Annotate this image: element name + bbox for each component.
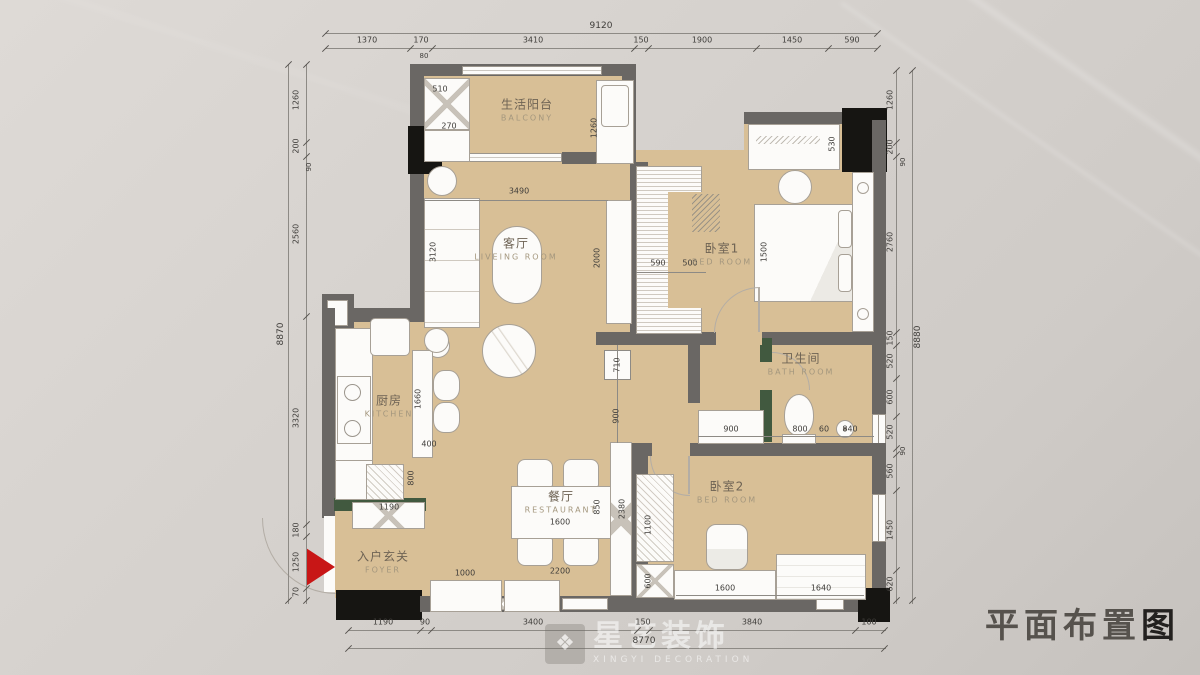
stove-burner — [344, 420, 361, 437]
dim-label-interior: 1190 — [379, 503, 399, 512]
room-label-en-bedroom1: BED ROOM — [692, 258, 752, 267]
wall-mid-b — [762, 332, 886, 345]
dim-label-interior: 840 — [842, 425, 857, 434]
dim-label-right: 150 — [886, 330, 895, 345]
room-label-bedroom1: 卧室1 — [705, 240, 740, 257]
dim-sub-top: 80 — [420, 52, 429, 60]
dim-label-left: 1260 — [292, 90, 301, 110]
bedroom1-door-leaf — [758, 288, 760, 332]
dim-overall-left: 8870 — [276, 323, 286, 346]
bar-stool — [433, 370, 460, 401]
dim-overall-right: 8880 — [913, 326, 923, 349]
dim-label-interior: 2200 — [550, 567, 570, 576]
dim-label-interior: 710 — [613, 357, 622, 372]
dim-label-top: 150 — [633, 36, 648, 45]
dim-label-interior: 800 — [407, 470, 416, 485]
dim-label-bottom: 150 — [635, 618, 650, 627]
dim-label-interior: 60 — [819, 425, 829, 434]
window-bedroom2 — [872, 494, 886, 542]
fridge — [366, 464, 404, 500]
dim-label-right: 200 — [886, 139, 895, 154]
dining-chair — [517, 459, 553, 487]
dim-label-interior: 800 — [792, 425, 807, 434]
dim-line — [896, 70, 897, 604]
dim-label-interior: 1000 — [455, 569, 475, 578]
dim-label-top: 1450 — [782, 36, 802, 45]
room-label-bedroom2: 卧室2 — [710, 478, 745, 495]
balcony-shelf — [424, 130, 470, 162]
dim-label-interior: 1600 — [550, 518, 570, 527]
dim-label-interior: 1260 — [590, 118, 599, 138]
bedroom1-door-gap — [716, 332, 762, 345]
balcony-sink-basin — [601, 85, 629, 127]
room-label-living: 客厅 — [503, 235, 529, 252]
bar-stool — [433, 402, 460, 433]
closet-top-cabinet — [748, 124, 840, 170]
dim-label-right: 620 — [886, 576, 895, 591]
dim-label-right: 520 — [886, 424, 895, 439]
watermark-name: 星艺装饰 — [593, 622, 753, 652]
entry-arrow — [306, 548, 335, 586]
room-label-en-foyer: FOYER — [365, 566, 401, 575]
shoe-cabinet — [430, 580, 502, 612]
light-streak — [841, 2, 1200, 520]
dim-label-interior: 2380 — [618, 499, 627, 519]
dim-label-right: 520 — [886, 353, 895, 368]
column-bottom-left — [336, 590, 422, 620]
dim-label-interior: 590 — [650, 259, 665, 268]
dim-label-interior: 270 — [441, 122, 456, 131]
dim-label-top: 590 — [844, 36, 859, 45]
dim-line — [424, 200, 608, 201]
dim-label-interior: 530 — [828, 136, 837, 151]
dim-label-bottom: 100 — [861, 618, 876, 627]
window-bottom-small — [562, 598, 608, 610]
floor-plan-canvas: ❖ 星艺装饰 XINGYI DECORATION 平面布置图 137017034… — [0, 0, 1200, 675]
dining-chair — [563, 538, 599, 566]
dim-label-interior: 1100 — [644, 515, 653, 535]
pillow — [838, 210, 852, 248]
round-rug — [482, 324, 536, 378]
room-label-balcony: 生活阳台 — [501, 96, 553, 113]
dim-label-interior: 1600 — [715, 584, 735, 593]
bedroom2-cabinet-tall — [636, 474, 674, 562]
window-balcony — [462, 66, 602, 75]
room-label-kitchen: 厨房 — [376, 392, 402, 409]
dim-label-interior: 2000 — [593, 248, 602, 268]
dim-label-right: 2760 — [886, 232, 895, 252]
wall-left — [322, 308, 335, 518]
dim-tick — [874, 45, 881, 52]
dim-label-bottom: 3400 — [523, 618, 543, 627]
dim-label-left: 180 — [292, 522, 301, 537]
drawing-title: 平面布置图 — [985, 598, 1180, 647]
dim-tick — [881, 627, 888, 634]
dim-label-right: 600 — [886, 389, 895, 404]
wall-living-left — [410, 64, 424, 318]
dim-label-left: 3320 — [292, 408, 301, 428]
room-label-en-bedroom2: BED ROOM — [697, 496, 757, 505]
sofa — [424, 198, 480, 328]
dim-label-left: 2560 — [292, 224, 301, 244]
drawing-title-main: 平面布置 — [985, 606, 1141, 646]
dim-label-interior: 900 — [612, 408, 621, 423]
dim-tick — [874, 30, 881, 37]
dim-label-interior: 510 — [432, 85, 447, 94]
dining-chair — [517, 538, 553, 566]
pillow — [838, 254, 852, 292]
dim-label-left: 1250 — [292, 552, 301, 572]
dining-chair — [563, 459, 599, 487]
watermark-subtitle: XINGYI DECORATION — [593, 655, 753, 665]
dim-label-top: 3410 — [523, 36, 543, 45]
foyer-cabinet — [504, 580, 560, 612]
bedroom2-cabinet-low — [636, 564, 674, 598]
dim-line — [325, 33, 877, 34]
dim-label-interior: 1640 — [811, 584, 831, 593]
kitchen-sink — [370, 318, 410, 356]
dim-label-bottom: 90 — [420, 618, 430, 627]
round-table-bedroom1 — [778, 170, 812, 204]
room-label-foyer: 入户玄关 — [357, 548, 409, 565]
dim-label-right: 90 — [899, 158, 907, 167]
room-label-bathroom: 卫生间 — [781, 350, 820, 367]
dim-label-interior: 1660 — [414, 389, 423, 409]
room-label-en-living: LIVEING ROOM — [474, 253, 557, 262]
xingyi-logo-icon: ❖ — [545, 624, 585, 664]
bar-stool — [424, 328, 449, 353]
dim-label-left: 200 — [292, 138, 301, 153]
dim-overall-bottom: 8770 — [633, 636, 656, 646]
dim-label-interior: 600 — [644, 573, 653, 588]
bedroom2-door-leaf — [688, 456, 690, 494]
dim-label-top: 1900 — [692, 36, 712, 45]
nightstand-lamp — [857, 182, 869, 194]
nightstand-lamp — [857, 308, 869, 320]
dim-label-bottom: 3840 — [742, 618, 762, 627]
dim-label-interior: 3490 — [509, 187, 529, 196]
bed2 — [776, 554, 866, 600]
closet-squiggle — [756, 136, 820, 144]
dim-tick — [881, 645, 888, 652]
dim-label-top: 1370 — [357, 36, 377, 45]
room-label-dining: 餐厅 — [548, 488, 574, 505]
wall-bedroom2-top-b — [690, 443, 886, 456]
dim-label-bottom: 1190 — [373, 618, 393, 627]
armchair — [706, 524, 748, 570]
room-label-en-kitchen: KITCHEN — [365, 410, 414, 419]
dim-label-interior: 900 — [723, 425, 738, 434]
room-label-en-balcony: BALCONY — [501, 114, 553, 123]
wall-hall-bath — [688, 345, 700, 403]
dim-label-left: 90 — [305, 163, 313, 172]
room-label-en-bathroom: BATH ROOM — [768, 368, 835, 377]
dim-label-top: 170 — [413, 36, 428, 45]
dim-line — [288, 64, 289, 604]
dim-label-interior: 400 — [421, 440, 436, 449]
clothes-hanger — [692, 194, 720, 232]
tv-cabinet — [606, 200, 632, 324]
dim-overall-top: 9120 — [590, 21, 613, 31]
dim-label-interior: 1500 — [760, 242, 769, 262]
dim-line — [676, 595, 864, 596]
stove-burner — [344, 384, 361, 401]
dim-label-right: 560 — [886, 463, 895, 478]
corner-side-table — [427, 166, 457, 196]
dim-label-left: 70 — [292, 587, 301, 597]
dim-label-interior: 3120 — [429, 242, 438, 262]
dim-line — [636, 272, 706, 273]
dim-line — [698, 436, 874, 437]
dim-label-right: 1260 — [886, 90, 895, 110]
room-label-en-dining: RESTAURANT — [525, 506, 598, 515]
drawing-title-last: 图 — [1141, 606, 1180, 646]
dim-label-right: 1450 — [886, 520, 895, 540]
